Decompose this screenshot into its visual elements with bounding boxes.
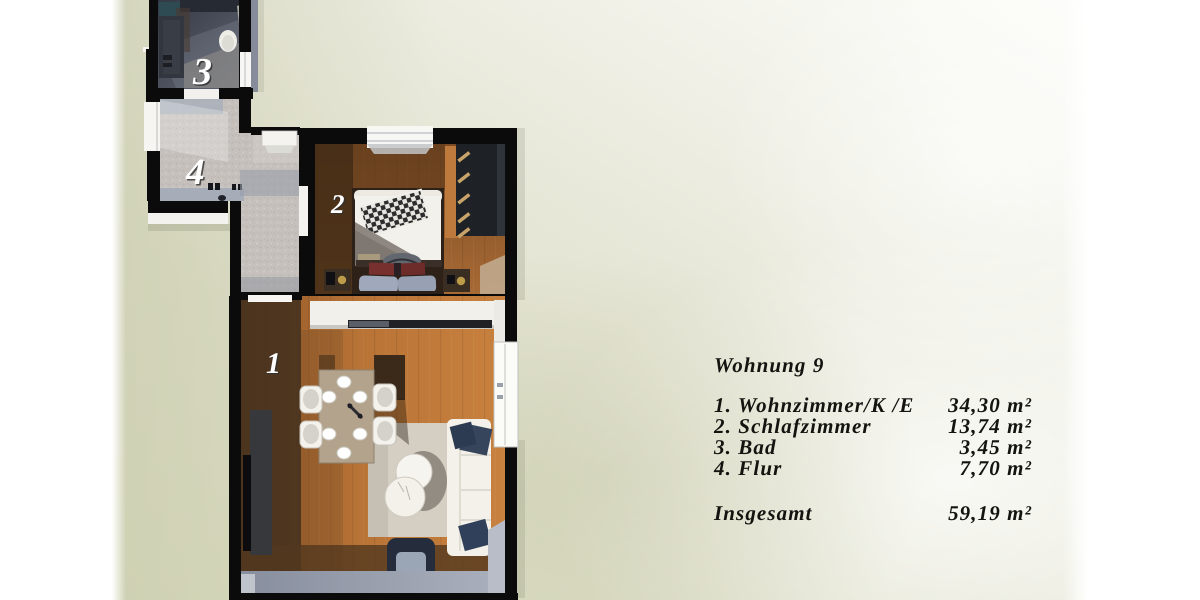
svg-text:1: 1 xyxy=(266,347,281,380)
svg-text:Wohnung 9: Wohnung 9 xyxy=(714,353,824,377)
svg-text:7,70 m²: 7,70 m² xyxy=(960,456,1032,480)
svg-text:59,19 m²: 59,19 m² xyxy=(948,501,1032,525)
svg-text:4. Flur: 4. Flur xyxy=(713,456,782,480)
svg-text:2: 2 xyxy=(330,189,345,219)
svg-text:4: 4 xyxy=(185,152,205,193)
svg-text:Insgesamt: Insgesamt xyxy=(713,501,813,525)
svg-text:3: 3 xyxy=(192,51,212,93)
